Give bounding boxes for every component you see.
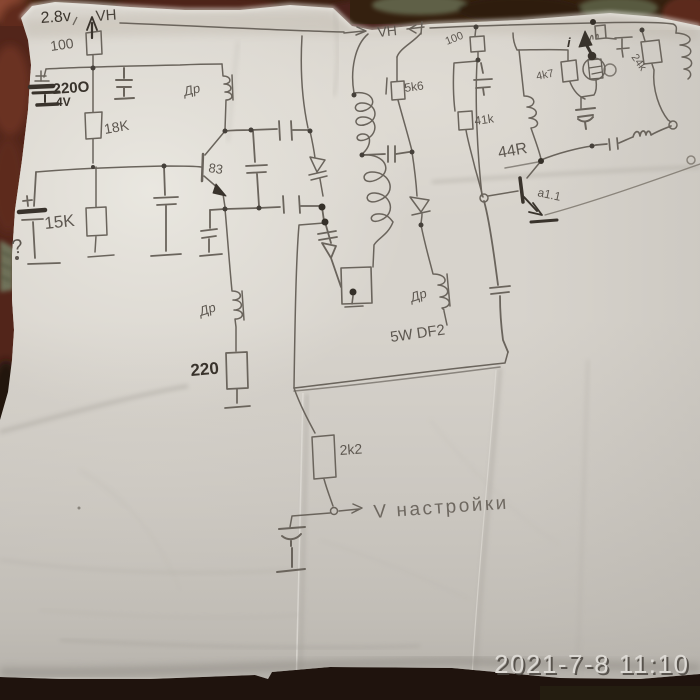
svg-text:5k6: 5k6	[403, 78, 424, 95]
svg-text:2k2: 2k2	[339, 440, 363, 458]
svg-text:220: 220	[190, 359, 220, 380]
svg-text:15K: 15K	[43, 211, 76, 233]
svg-text:83: 83	[208, 160, 224, 177]
svg-text:2021-7-8 11:10: 2021-7-8 11:10	[494, 649, 689, 679]
svg-text:i: i	[567, 35, 571, 50]
svg-text:41k: 41k	[473, 111, 495, 128]
svg-text:4V: 4V	[56, 95, 71, 109]
svg-text:VH: VH	[377, 22, 398, 40]
svg-text:100: 100	[49, 35, 75, 54]
svg-text:VH: VH	[95, 7, 117, 25]
svg-text:2.8v: 2.8v	[40, 8, 71, 27]
